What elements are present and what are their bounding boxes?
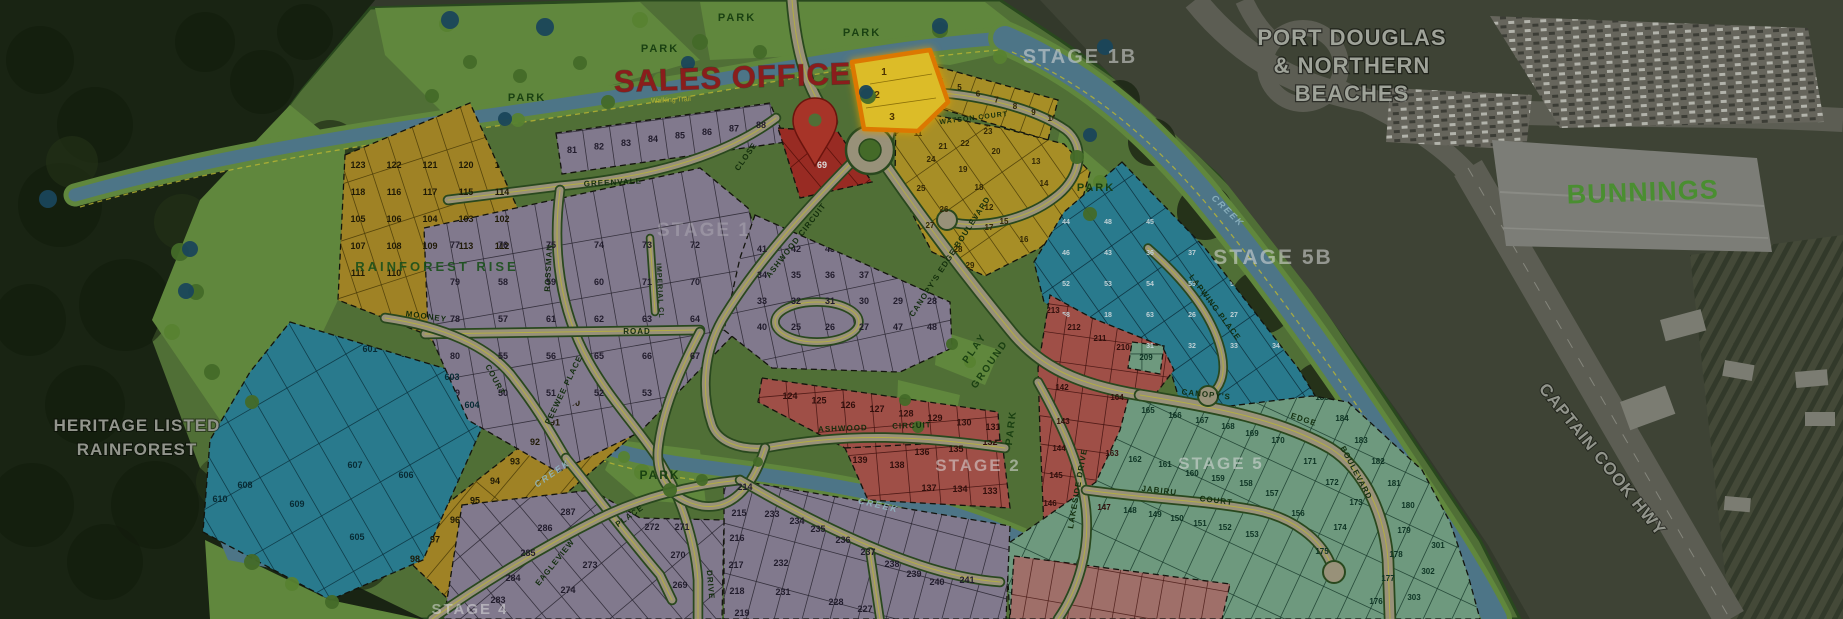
estate-masterplan-map: 1231221211201191181161171151141051061041…: [0, 0, 1843, 619]
dark-overlay: [0, 0, 1843, 619]
masterplan-svg: 1231221211201191181161171151141051061041…: [0, 0, 1843, 619]
